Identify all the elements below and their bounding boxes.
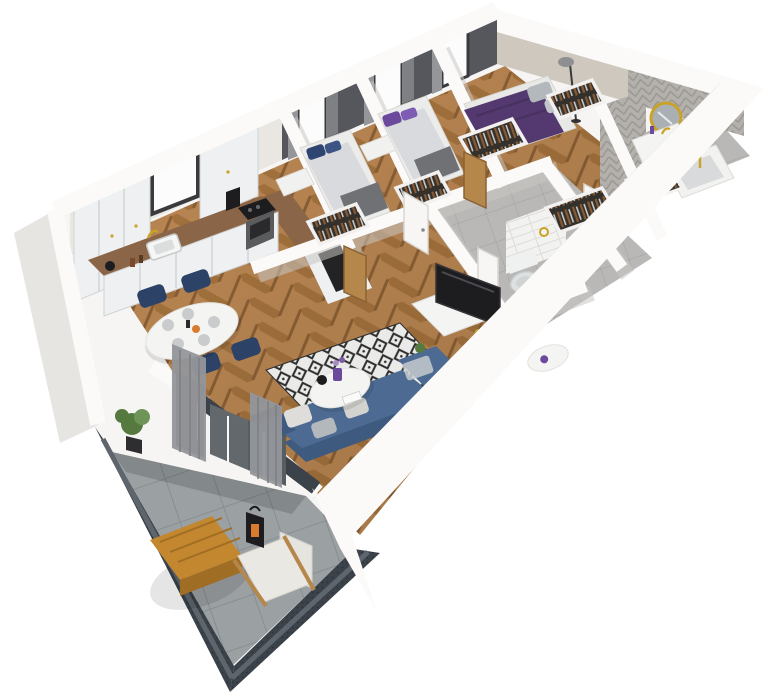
side-table bbox=[524, 340, 572, 376]
purple-vase bbox=[333, 368, 342, 381]
black-teapot bbox=[317, 375, 327, 385]
plate bbox=[198, 334, 210, 346]
purple-bottle bbox=[650, 126, 654, 134]
kettle bbox=[105, 261, 115, 271]
apartment-3d-svg bbox=[0, 0, 769, 700]
plate bbox=[162, 319, 174, 331]
fruit-bowl bbox=[192, 325, 200, 333]
candle bbox=[186, 320, 190, 328]
plant-foliage bbox=[134, 409, 150, 425]
floor-lamp-base bbox=[571, 119, 581, 123]
floor-lamp-shade bbox=[558, 57, 574, 67]
cabinet-gold-knob bbox=[134, 224, 137, 227]
jar bbox=[130, 258, 135, 267]
plate bbox=[182, 308, 194, 320]
plate bbox=[208, 316, 220, 328]
plant-foliage bbox=[115, 409, 129, 423]
door-handle bbox=[421, 228, 425, 232]
living-plant bbox=[415, 343, 425, 353]
cabinet-gold-knob bbox=[226, 170, 229, 173]
flowers bbox=[333, 360, 339, 366]
cabinet-gold-knob bbox=[110, 234, 113, 237]
burner bbox=[248, 208, 252, 212]
lantern-candle bbox=[251, 524, 259, 537]
floor-plan-render bbox=[0, 0, 769, 700]
flowers bbox=[339, 357, 345, 363]
curtain-left bbox=[172, 344, 206, 462]
bed2-oak-door bbox=[464, 152, 486, 208]
bed1-oak-door bbox=[344, 246, 366, 302]
burner bbox=[256, 205, 260, 209]
jar bbox=[139, 255, 143, 263]
curtain-right bbox=[250, 392, 282, 488]
